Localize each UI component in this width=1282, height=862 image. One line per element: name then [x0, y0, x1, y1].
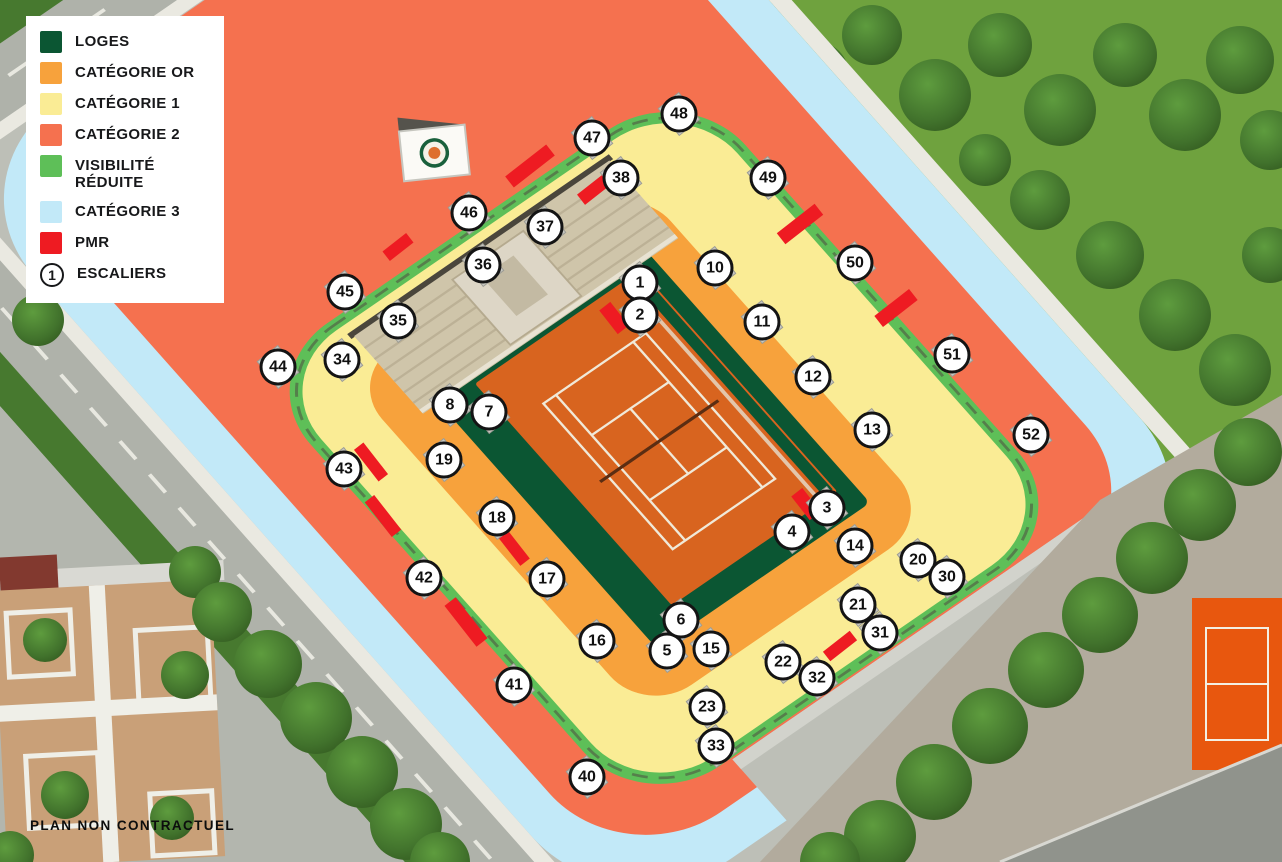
- escalier-badge-10: 10: [697, 250, 734, 287]
- legend-category-rows: LOGESCATÉGORIE ORCATÉGORIE 1CATÉGORIE 2V…: [40, 31, 214, 254]
- escalier-badge-38: 38: [603, 160, 640, 197]
- map-disclaimer: PLAN NON CONTRACTUEL: [30, 818, 235, 833]
- visibilite_reduite-swatch: [40, 155, 62, 177]
- escalier-badge-32: 32: [799, 660, 836, 697]
- categorie_1-swatch: [40, 93, 62, 115]
- escalier-badge-44: 44: [260, 349, 297, 386]
- escalier-badge-40: 40: [569, 759, 606, 796]
- escalier-badge-36: 36: [465, 247, 502, 284]
- escalier-badge-18: 18: [479, 500, 516, 537]
- escalier-badge-4: 4: [774, 514, 811, 551]
- escalier-badge-34: 34: [324, 342, 361, 379]
- escalier-badge-16: 16: [579, 623, 616, 660]
- legend-item-label: CATÉGORIE 2: [75, 124, 180, 143]
- escalier-badge-42: 42: [406, 560, 443, 597]
- escalier-badge-7: 7: [471, 394, 508, 431]
- escalier-badge-12: 12: [795, 359, 832, 396]
- escalier-badge-22: 22: [765, 644, 802, 681]
- escalier-badge-6: 6: [663, 602, 700, 639]
- legend-item-label: CATÉGORIE OR: [75, 62, 195, 81]
- escalier-badge-52: 52: [1013, 417, 1050, 454]
- legend-item: PMR: [40, 232, 214, 254]
- escalier-badge-17: 17: [529, 561, 566, 598]
- escalier-symbol: 1: [40, 263, 64, 287]
- practice-court: [1192, 598, 1282, 770]
- escalier-badge-14: 14: [837, 528, 874, 565]
- legend-item: CATÉGORIE 2: [40, 124, 214, 146]
- legend-item: LOGES: [40, 31, 214, 53]
- escalier-badge-3: 3: [809, 490, 846, 527]
- escalier-badge-30: 30: [929, 559, 966, 596]
- legend-item-label: ESCALIERS: [77, 263, 166, 282]
- escalier-badge-15: 15: [693, 631, 730, 668]
- escalier-badge-43: 43: [326, 451, 363, 488]
- escalier-badge-35: 35: [380, 303, 417, 340]
- categorie_3-swatch: [40, 201, 62, 223]
- escalier-badge-31: 31: [862, 615, 899, 652]
- categorie_or-swatch: [40, 62, 62, 84]
- legend-item-label: CATÉGORIE 1: [75, 93, 180, 112]
- escalier-badge-48: 48: [661, 96, 698, 133]
- escalier-badge-47: 47: [574, 120, 611, 157]
- escalier-badge-45: 45: [327, 274, 364, 311]
- pmr-swatch: [40, 232, 62, 254]
- escalier-badge-50: 50: [837, 245, 874, 282]
- legend-panel: LOGESCATÉGORIE ORCATÉGORIE 1CATÉGORIE 2V…: [26, 16, 224, 303]
- escalier-badge-11: 11: [744, 304, 781, 341]
- legend-item: CATÉGORIE 1: [40, 93, 214, 115]
- escalier-badge-13: 13: [854, 412, 891, 449]
- escalier-badge-19: 19: [426, 442, 463, 479]
- legend-item-label: LOGES: [75, 31, 130, 50]
- legend-item: VISIBILITÉ RÉDUITE: [40, 155, 214, 192]
- escalier-badge-41: 41: [496, 667, 533, 704]
- legend-item-label: VISIBILITÉ RÉDUITE: [75, 155, 214, 192]
- escalier-badge-33: 33: [698, 728, 735, 765]
- escalier-badge-49: 49: [750, 160, 787, 197]
- stadium-seating-map: LOGESCATÉGORIE ORCATÉGORIE 1CATÉGORIE 2V…: [0, 0, 1282, 862]
- legend-item: CATÉGORIE 3: [40, 201, 214, 223]
- legend-item-label: PMR: [75, 232, 110, 251]
- escalier-badge-51: 51: [934, 337, 971, 374]
- legend-item: CATÉGORIE OR: [40, 62, 214, 84]
- escalier-badge-46: 46: [451, 195, 488, 232]
- escalier-badge-8: 8: [432, 387, 469, 424]
- escalier-badge-37: 37: [527, 209, 564, 246]
- legend-item-escaliers: 1 ESCALIERS: [40, 263, 214, 287]
- escalier-badge-2: 2: [622, 297, 659, 334]
- loges-swatch: [40, 31, 62, 53]
- escalier-badge-23: 23: [689, 689, 726, 726]
- categorie_2-swatch: [40, 124, 62, 146]
- legend-item-label: CATÉGORIE 3: [75, 201, 180, 220]
